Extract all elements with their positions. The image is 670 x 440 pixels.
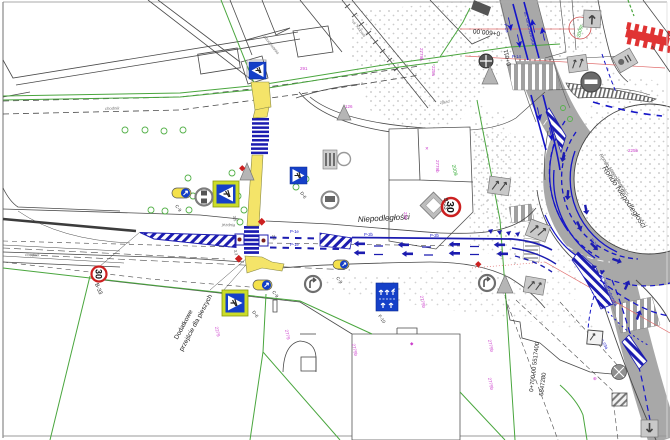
svg-text:225b: 225b bbox=[628, 148, 639, 153]
svg-text:P-14: P-14 bbox=[512, 54, 522, 59]
svg-text:P-2b: P-2b bbox=[430, 233, 440, 238]
svg-text:⊕: ⊕ bbox=[593, 376, 597, 381]
svg-text:chodnik: chodnik bbox=[105, 105, 121, 111]
svg-text:✕: ✕ bbox=[425, 146, 429, 151]
svg-text:chodnik: chodnik bbox=[25, 252, 41, 258]
svg-text:225: 225 bbox=[403, 212, 408, 220]
svg-text:126: 126 bbox=[345, 104, 353, 109]
svg-text:P-1e: P-1e bbox=[290, 229, 300, 234]
svg-text:225a: 225a bbox=[431, 66, 436, 77]
svg-text:◆: ◆ bbox=[410, 341, 414, 346]
svg-text:291: 291 bbox=[300, 66, 308, 71]
svg-text:P-2b: P-2b bbox=[364, 232, 374, 237]
svg-text:B-33: B-33 bbox=[442, 198, 448, 210]
svg-text:2779b: 2779b bbox=[435, 160, 440, 173]
svg-text:P-1e: P-1e bbox=[290, 242, 300, 247]
svg-text:jezdnia: jezdnia bbox=[221, 222, 236, 228]
svg-text:2779b: 2779b bbox=[419, 48, 424, 61]
svg-text:30: 30 bbox=[94, 269, 104, 279]
